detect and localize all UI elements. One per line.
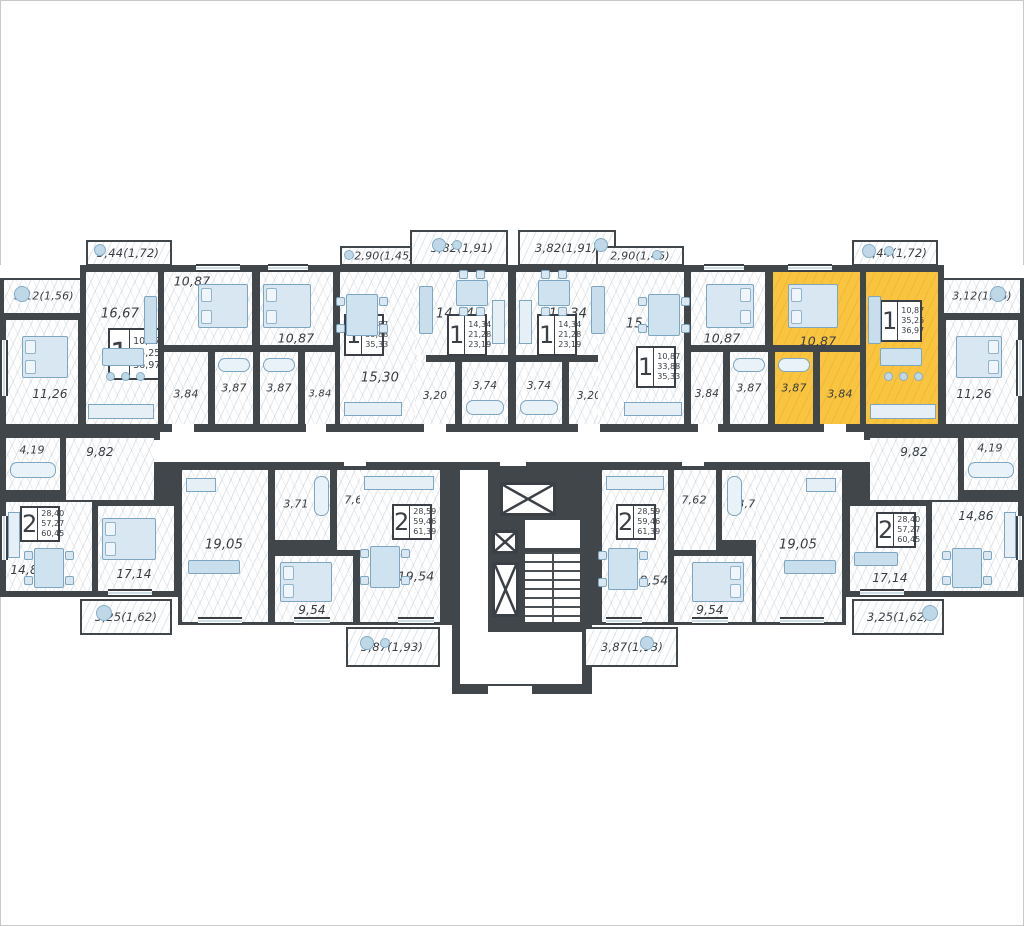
chair-furniture <box>65 576 74 585</box>
plant-icon <box>96 605 112 621</box>
0[interactable] <box>706 284 754 328</box>
balcony-area-label: 3,82(1,91) <box>535 241 597 255</box>
apartment-area-value: 14,34 <box>558 320 581 330</box>
plant-icon <box>884 246 894 256</box>
floor-plan: 3,12(1,56)11,2616,6710,873,843,873,873,8… <box>0 0 1024 926</box>
apartment-areas: 14,3421,2823,19 <box>465 316 491 354</box>
stool-furniture <box>106 372 115 381</box>
room-lobby <box>460 470 488 642</box>
room-area-label: 3,84 <box>827 388 852 401</box>
chair-furniture <box>360 576 369 585</box>
dining-table-furniture <box>346 294 378 336</box>
room-area-label: 9,82 <box>86 445 114 459</box>
apartment-info-card: 110,8733,8835,33 <box>636 346 676 388</box>
door-opening <box>344 456 366 466</box>
pillow <box>791 288 802 302</box>
stool-furniture <box>884 372 893 381</box>
room-area-label: 3,87 <box>221 382 246 395</box>
chair-furniture <box>983 551 992 560</box>
sofa-furniture <box>188 560 240 574</box>
chair-furniture <box>639 578 648 587</box>
pillow <box>791 310 802 324</box>
pillow <box>740 288 751 302</box>
room-r_19_54R <box>602 470 668 622</box>
kitchen-counter-furniture <box>8 512 20 558</box>
bathtub-furniture <box>218 358 250 372</box>
room-area-label: 4,19 <box>977 442 1002 455</box>
window-icon <box>294 617 330 625</box>
apartment-rooms-count: 1 <box>449 316 465 354</box>
apartment-area-value: 10,87 <box>901 306 924 316</box>
window-icon <box>692 617 728 625</box>
bathtub-furniture <box>733 358 765 372</box>
pillow <box>201 288 212 302</box>
0[interactable] <box>788 284 838 328</box>
room-area-label: 3,74 <box>473 380 497 392</box>
apartment-areas: 10,8733,8835,33 <box>654 348 680 386</box>
kitchen-counter-furniture <box>1004 512 1016 558</box>
room-area-label: 19,05 <box>205 538 243 553</box>
pillow <box>266 310 277 324</box>
plant-icon <box>452 240 462 250</box>
room-landing <box>525 520 580 548</box>
window-icon <box>704 264 744 272</box>
window-icon <box>860 589 904 597</box>
apartment-areas: 28,5959,4661,39 <box>634 506 660 538</box>
dining-table-furniture <box>34 548 64 588</box>
chair-furniture <box>598 551 607 560</box>
room-area-label: 9,82 <box>900 445 928 459</box>
window-icon <box>0 340 8 396</box>
apartment-area-value: 28,40 <box>897 515 920 525</box>
chair-furniture <box>598 578 607 587</box>
window-icon <box>398 617 434 625</box>
kitchen-counter-furniture <box>88 404 154 419</box>
door-opening <box>578 424 600 433</box>
stool-furniture <box>121 372 130 381</box>
room-area-label: 15,30 <box>361 371 399 386</box>
sofa-furniture <box>144 296 157 344</box>
chair-furniture <box>476 307 485 316</box>
room-area-label: 11,26 <box>956 387 991 401</box>
apartment-area-value: 57,27 <box>41 519 64 529</box>
table-furniture <box>880 348 922 366</box>
plant-icon <box>922 605 938 621</box>
bathtub-furniture <box>263 358 295 372</box>
room-area-label: 3,87 <box>266 382 291 395</box>
kitchen-counter-furniture <box>492 300 505 344</box>
wall-cover <box>0 265 80 278</box>
plant-icon <box>990 286 1006 302</box>
room-area-label: 3,84 <box>173 388 198 401</box>
stool-furniture <box>136 372 145 381</box>
door-opening <box>172 424 194 433</box>
apartment-rooms-count: 2 <box>618 506 634 538</box>
apartment-info-card: 228,5959,4661,39 <box>392 504 432 540</box>
elevator-shaft-icon <box>500 482 556 516</box>
apartment-info-card: 228,4057,2760,45 <box>876 512 916 548</box>
pillow <box>988 360 999 374</box>
apartment-rooms-count: 1 <box>882 302 898 340</box>
window-icon <box>606 617 642 625</box>
chair-furniture <box>942 576 951 585</box>
apartment-area-value: 14,34 <box>468 320 491 330</box>
door-opening <box>824 424 846 433</box>
room-area-label: 4,19 <box>19 444 44 457</box>
room-r_hall762R <box>674 470 716 550</box>
apartment-areas: 28,5959,4661,39 <box>410 506 436 538</box>
chair-furniture <box>476 270 485 279</box>
pillow <box>283 584 294 598</box>
room-area-label: 17,14 <box>116 567 151 581</box>
window-icon <box>108 589 152 597</box>
apartment-info-card: 114,3421,2823,19 <box>447 314 487 356</box>
apartment-area-value: 61,39 <box>637 527 660 537</box>
apartment-rooms-count: 2 <box>394 506 410 538</box>
dining-table-furniture <box>456 280 488 306</box>
bathtub-furniture <box>520 400 558 415</box>
room-area-label: 3,84 <box>695 388 719 400</box>
sofa-furniture <box>784 560 836 574</box>
window-icon <box>788 264 832 272</box>
bathtub-furniture <box>778 358 810 372</box>
chair-furniture <box>942 551 951 560</box>
bathtub-furniture <box>727 476 742 516</box>
kitchen-counter-furniture <box>806 478 836 492</box>
plant-icon <box>640 636 654 650</box>
apartment-info-card: 228,5959,4661,39 <box>616 504 656 540</box>
apartment-area-value: 59,46 <box>637 517 660 527</box>
window-icon <box>196 264 240 272</box>
plant-icon <box>594 238 608 252</box>
pillow <box>25 340 36 354</box>
apartment-area-value: 28,59 <box>413 507 436 517</box>
dining-table-furniture <box>538 280 570 306</box>
chair-furniture <box>24 551 33 560</box>
room-area-label: 3,74 <box>527 380 551 392</box>
door-opening <box>306 424 326 433</box>
window-icon <box>0 516 8 560</box>
apartment-info-card: 114,3421,2823,19 <box>537 314 577 356</box>
pillow <box>105 542 116 556</box>
apartment-area-value: 60,45 <box>41 529 64 539</box>
door-opening <box>858 440 870 462</box>
plant-icon <box>652 250 662 260</box>
window-icon <box>268 264 308 272</box>
room-area-label: 17,14 <box>872 571 907 585</box>
plant-icon <box>380 638 390 648</box>
door-opening <box>424 424 446 433</box>
chair-furniture <box>459 307 468 316</box>
0[interactable] <box>956 336 1002 378</box>
pillow <box>730 584 741 598</box>
plant-icon <box>862 244 876 258</box>
0[interactable] <box>692 562 744 602</box>
door-opening <box>698 424 718 433</box>
apartment-rooms-count: 2 <box>878 514 894 546</box>
room-area-label: 10,87 <box>278 331 315 346</box>
chair-furniture <box>336 297 345 306</box>
sofa-furniture <box>868 296 881 344</box>
sofa-furniture <box>419 286 433 334</box>
apartment-area-value: 21,28 <box>558 330 581 340</box>
kitchen-counter-furniture <box>519 300 532 344</box>
apartment-area-value: 61,39 <box>413 527 436 537</box>
chair-furniture <box>541 307 550 316</box>
0[interactable] <box>198 284 248 328</box>
door-opening <box>682 456 704 466</box>
kitchen-counter-furniture <box>624 402 682 416</box>
bathtub-furniture <box>314 476 329 516</box>
apartment-areas: 10,8735,2536,97 <box>898 302 924 340</box>
sofa-furniture <box>854 552 898 566</box>
dining-table-furniture <box>648 294 680 336</box>
chair-furniture <box>681 324 690 333</box>
apartment-areas: 28,4057,2760,45 <box>894 514 920 546</box>
bathtub-furniture <box>968 462 1014 478</box>
room-area-label: 3,84 <box>308 389 331 400</box>
table-furniture <box>102 348 144 366</box>
kitchen-counter-furniture <box>344 402 402 416</box>
plant-icon <box>432 238 446 252</box>
room-area-label: 16,67 <box>101 307 139 322</box>
pillow <box>283 566 294 580</box>
kitchen-counter-furniture <box>186 478 216 492</box>
apartment-rooms-count: 2 <box>22 508 38 540</box>
chair-furniture <box>379 324 388 333</box>
chair-furniture <box>541 270 550 279</box>
plant-icon <box>14 286 30 302</box>
chair-furniture <box>638 297 647 306</box>
window-icon <box>1016 340 1024 396</box>
staircase-icon <box>525 552 580 622</box>
bathtub-furniture <box>466 400 504 415</box>
apartment-areas: 14,3421,2823,19 <box>555 316 581 354</box>
pillow <box>730 566 741 580</box>
window-icon <box>780 617 824 625</box>
apartment-area-value: 33,88 <box>657 362 680 372</box>
plant-icon <box>94 244 106 256</box>
room-area-label: 9,54 <box>298 603 326 617</box>
apartment-area-value: 21,28 <box>468 330 491 340</box>
sofa-furniture <box>591 286 605 334</box>
chair-furniture <box>983 576 992 585</box>
0[interactable] <box>22 336 68 378</box>
chair-furniture <box>336 324 345 333</box>
apartment-area-value: 60,45 <box>897 535 920 545</box>
chair-furniture <box>558 307 567 316</box>
bathtub-furniture <box>10 462 56 478</box>
apartment-info-card[interactable]: 110,8735,2536,97 <box>880 300 922 342</box>
pillow <box>25 360 36 374</box>
chair-furniture <box>401 549 410 558</box>
door-opening <box>500 456 526 466</box>
balcony-area-label: 3,44(1,72) <box>97 246 159 260</box>
chair-furniture <box>459 270 468 279</box>
dining-table-furniture <box>952 548 982 588</box>
window-icon <box>1016 516 1024 560</box>
apartment-rooms-count: 1 <box>539 316 555 354</box>
chair-furniture <box>401 576 410 585</box>
room-area-label: 11,26 <box>32 387 67 401</box>
chair-furniture <box>558 270 567 279</box>
chair-furniture <box>360 549 369 558</box>
kitchen-counter-furniture <box>364 476 434 490</box>
kitchen-counter-furniture <box>870 404 936 419</box>
room-area-label: 7,62 <box>681 494 706 507</box>
balcony-area-label: 3,25(1,62) <box>867 610 929 624</box>
apartment-areas: 28,4057,2760,45 <box>38 508 64 540</box>
elevator-shaft-icon <box>492 530 518 554</box>
room-area-label: 14,86 <box>958 509 993 523</box>
room-area-label: 10,87 <box>704 331 741 346</box>
0[interactable] <box>280 562 332 602</box>
apartment-area-value: 35,33 <box>657 372 680 382</box>
chair-furniture <box>24 576 33 585</box>
chair-furniture <box>65 551 74 560</box>
elevator-shaft-icon <box>492 562 519 617</box>
plant-icon <box>360 636 374 650</box>
chair-furniture <box>681 297 690 306</box>
kitchen-counter-furniture <box>606 476 664 490</box>
apartment-rooms-count: 1 <box>638 348 654 386</box>
apartment-area-value: 35,33 <box>365 340 388 350</box>
chair-furniture <box>379 297 388 306</box>
pillow <box>266 288 277 302</box>
apartment-area-value: 23,19 <box>558 340 581 350</box>
room-area-label: 3,87 <box>736 382 761 395</box>
stool-furniture <box>914 372 923 381</box>
0[interactable] <box>102 518 156 560</box>
apartment-area-value: 10,87 <box>657 352 680 362</box>
apartment-area-value: 23,19 <box>468 340 491 350</box>
chair-furniture <box>638 324 647 333</box>
room-area-label: 19,05 <box>779 538 817 553</box>
pillow <box>201 310 212 324</box>
door-opening <box>154 440 166 462</box>
dining-table-furniture <box>608 548 638 590</box>
chair-furniture <box>639 551 648 560</box>
room-area-label: 3,20 <box>423 390 447 402</box>
window-icon <box>198 617 242 625</box>
balcony-area-label: 2,90(1,45) <box>354 250 414 263</box>
apartment-area-value: 35,25 <box>901 316 924 326</box>
apartment-area-value: 28,40 <box>41 509 64 519</box>
stool-furniture <box>899 372 908 381</box>
apartment-area-value: 36,97 <box>901 326 924 336</box>
pillow <box>105 522 116 536</box>
dining-table-furniture <box>370 546 400 588</box>
room-botlobby <box>460 632 582 684</box>
plant-icon <box>344 250 354 260</box>
room-area-label: 3,87 <box>781 382 806 395</box>
apartment-area-value: 59,46 <box>413 517 436 527</box>
room-area-label: 9,54 <box>696 603 724 617</box>
door-opening <box>488 686 532 696</box>
pillow <box>740 310 751 324</box>
wall-cover <box>944 265 1024 278</box>
pillow <box>988 340 999 354</box>
apartment-area-value: 28,59 <box>637 507 660 517</box>
0[interactable] <box>263 284 311 328</box>
apartment-info-card: 228,4057,2760,45 <box>20 506 60 542</box>
room-area-label: 10,87 <box>800 334 837 349</box>
apartment-area-value: 57,27 <box>897 525 920 535</box>
room-area-label: 3,71 <box>283 498 308 511</box>
